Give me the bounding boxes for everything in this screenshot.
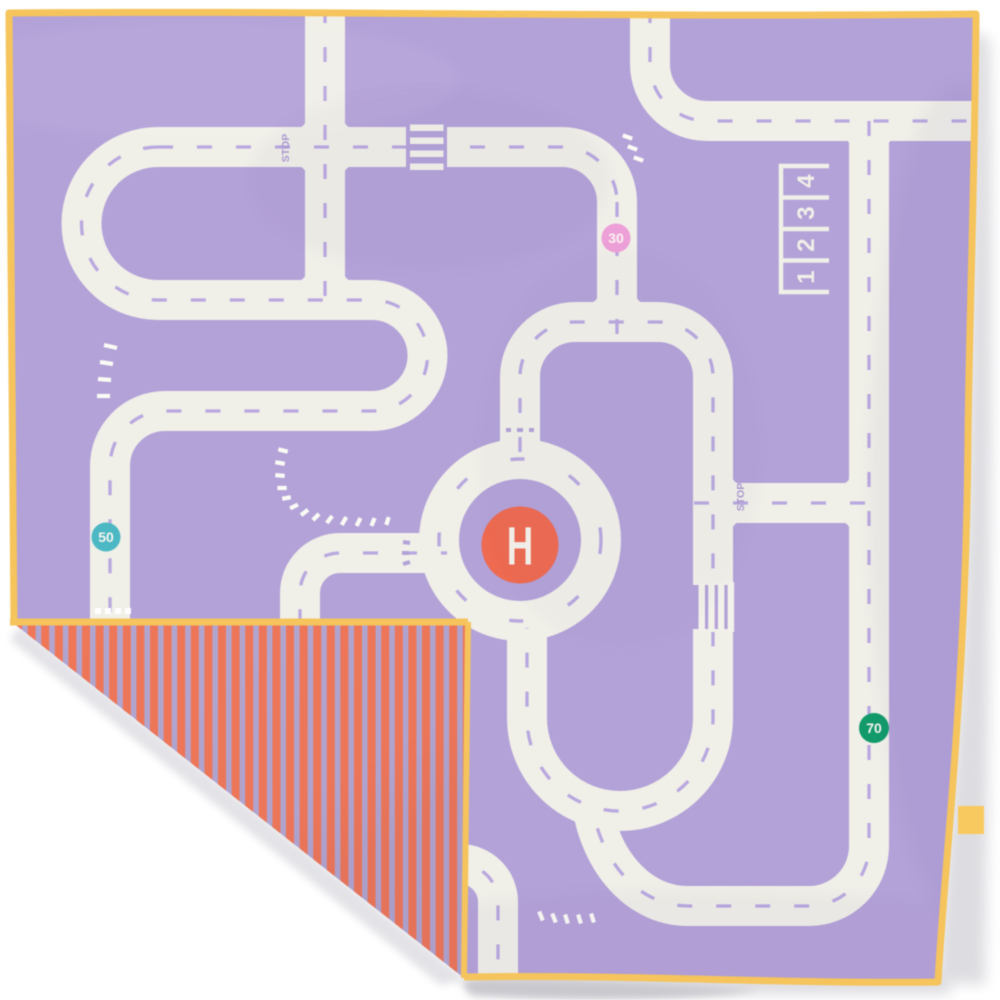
svg-text:2: 2 [793, 238, 820, 251]
svg-text:50: 50 [98, 529, 114, 545]
svg-text:70: 70 [866, 720, 882, 736]
svg-text:30: 30 [608, 230, 624, 246]
svg-text:3: 3 [793, 206, 820, 219]
svg-text:4: 4 [793, 174, 820, 188]
svg-text:1: 1 [793, 270, 820, 283]
